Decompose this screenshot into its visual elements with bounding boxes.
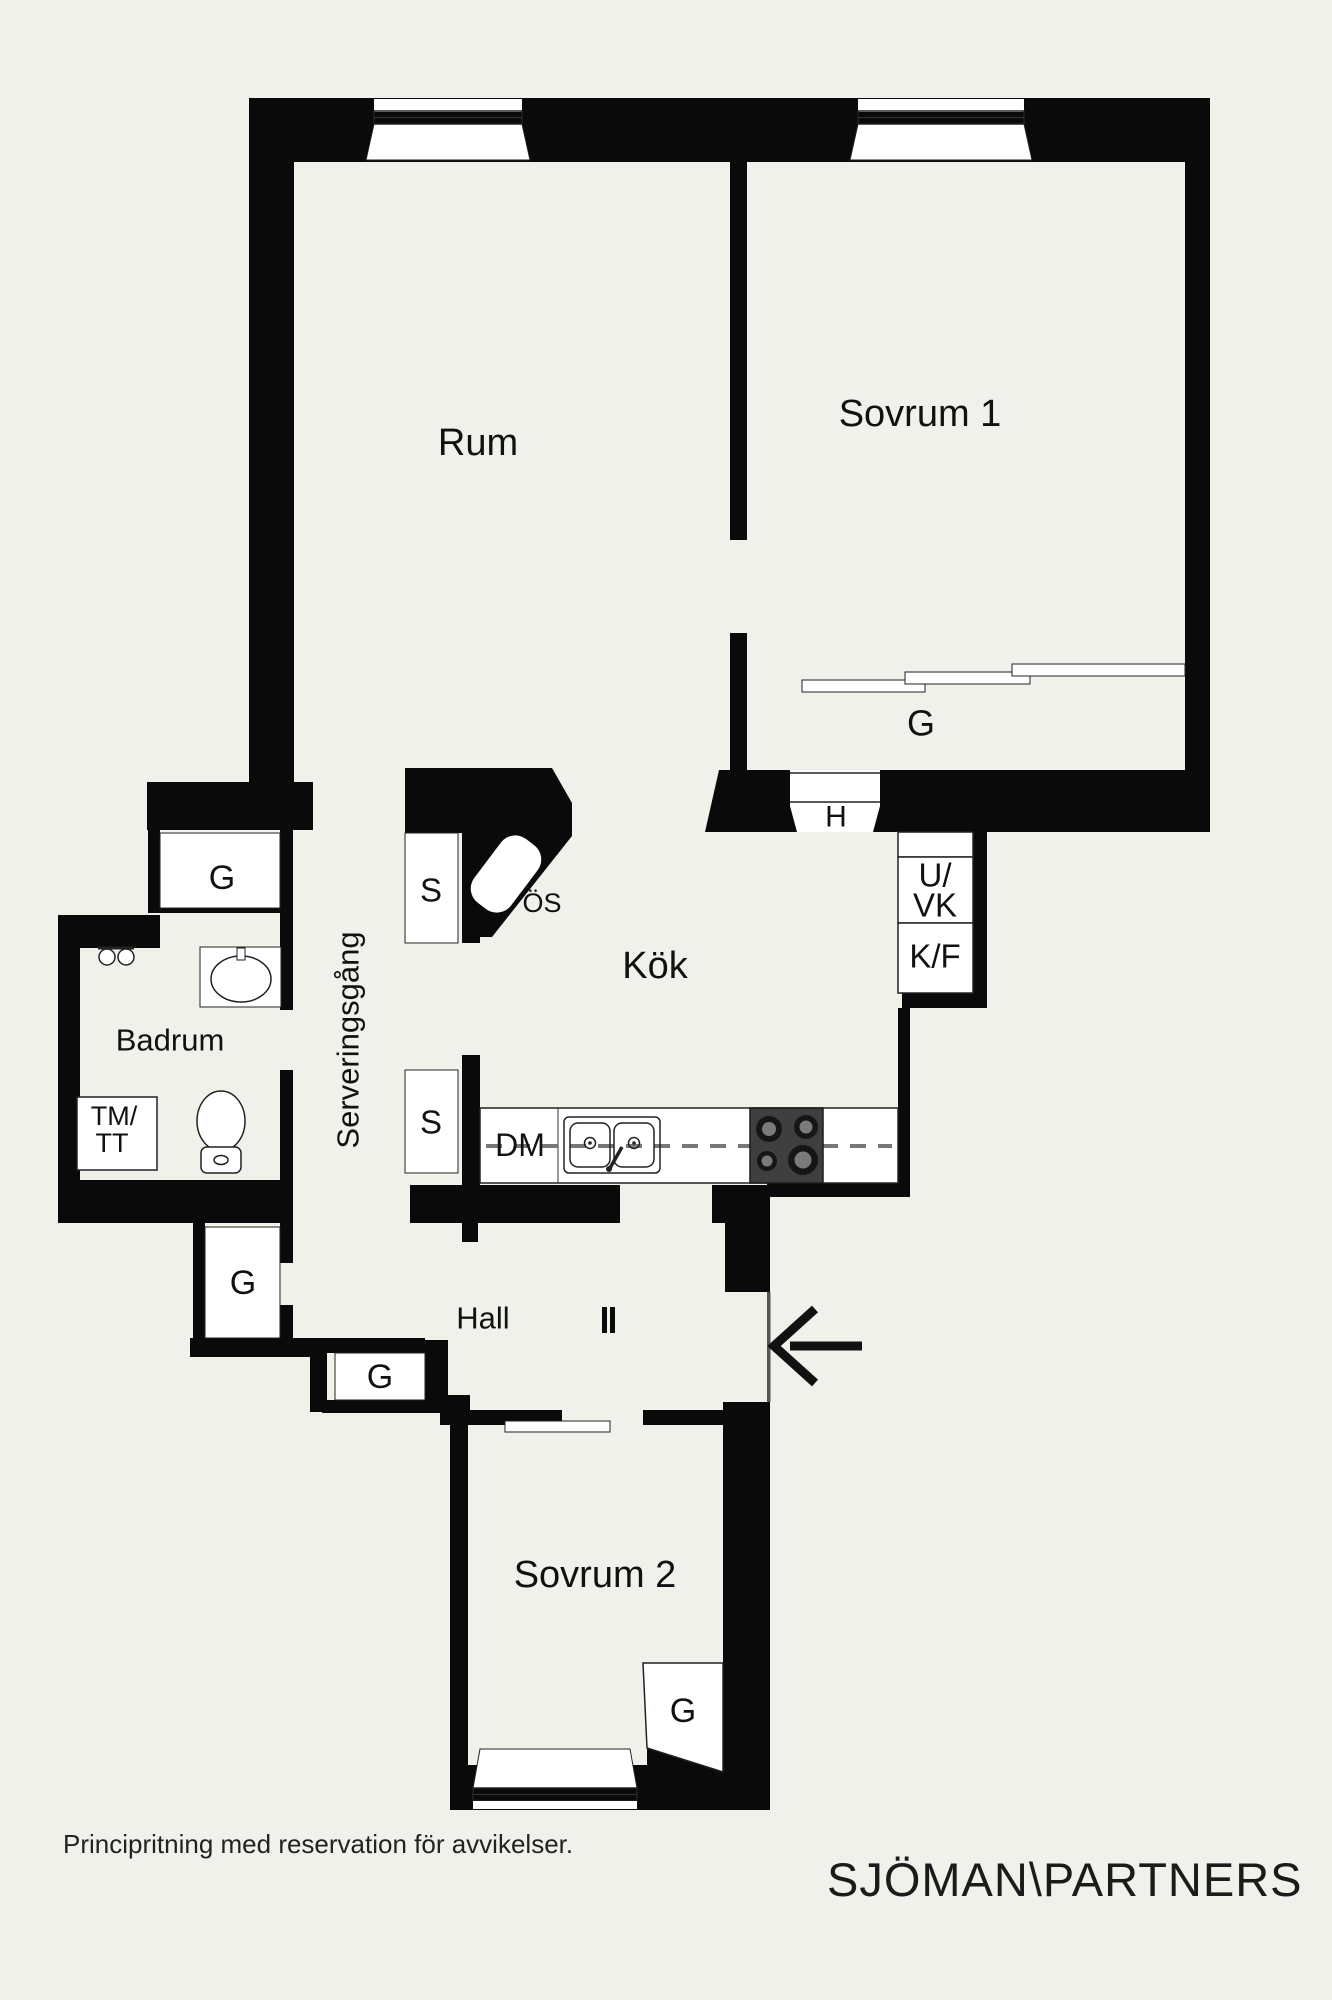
- shower-mixer-icon: [98, 948, 134, 965]
- sliding-rails-sovrum1: [802, 664, 1185, 692]
- wall-closet3-bottom: [322, 1400, 448, 1413]
- wall-closet1-left: [148, 830, 160, 913]
- window-rum: [366, 99, 530, 160]
- oven-label-line2: VK: [913, 887, 957, 924]
- room-label-sovrum2: Sovrum 2: [514, 1554, 677, 1596]
- wardrobe-label-2: G: [230, 1264, 256, 1302]
- room-label-kok: Kök: [622, 945, 688, 987]
- wall-badrum-bottom: [58, 1180, 293, 1223]
- fireplace-label: ÖS: [522, 888, 561, 918]
- room-label-hall: Hall: [456, 1301, 509, 1336]
- toilet-icon: [197, 1091, 245, 1173]
- room-label-serveringsgang: Serveringsgång: [331, 931, 366, 1148]
- wall-badrum-right-upper: [280, 830, 293, 1010]
- washer-label-line2: TT: [96, 1128, 129, 1158]
- wardrobe-label-3: G: [367, 1358, 393, 1396]
- entry-arrow-icon: [774, 1309, 862, 1383]
- wall-partition-upper: [730, 162, 747, 540]
- dishwasher-label: DM: [495, 1127, 545, 1163]
- wall-sovrum2-right: [723, 1402, 770, 1810]
- window-sovrum1: [850, 99, 1032, 160]
- cabinet-label-upper: S: [420, 872, 442, 909]
- fridge-freezer-label: K/F: [909, 938, 960, 975]
- wall-appliance-right: [973, 832, 987, 1008]
- cabinet-label-lower: S: [420, 1104, 442, 1141]
- washbasin-icon: [200, 947, 281, 1007]
- wall-appliance-step: [902, 993, 987, 1008]
- room-label-rum: Rum: [438, 422, 518, 464]
- wall-badrum-left: [58, 915, 80, 1223]
- wall-kok-right-thin: [898, 1008, 910, 1185]
- floor-plan-page: Rum Sovrum 1 Kök Badrum Serveringsgång H…: [0, 0, 1332, 2000]
- washer-label-line1: TM/: [91, 1101, 138, 1131]
- wall-sovrum2-top-right: [643, 1410, 725, 1425]
- floor-plan-drawing: Rum Sovrum 1 Kök Badrum Serveringsgång H…: [0, 0, 1332, 2000]
- wardrobe-label-1: G: [209, 859, 235, 897]
- wall-closet3-right: [425, 1340, 448, 1400]
- wall-kok-left-lower: [462, 1055, 480, 1185]
- disclaimer-text: Principritning med reservation för avvik…: [63, 1829, 573, 1859]
- wall-closet2-right-lower: [280, 1305, 293, 1338]
- wall-sovrum1-bottom: [880, 770, 1210, 832]
- wall-kok-top-right: [705, 770, 790, 832]
- room-label-sovrum1: Sovrum 1: [839, 393, 1002, 435]
- hatch-label: H: [825, 801, 847, 834]
- wall-closet2-left: [193, 1223, 205, 1338]
- wall-badrum-right-lower: [280, 1070, 293, 1185]
- wall-closet2-right-upper: [280, 1223, 293, 1263]
- wall-closet3-top: [322, 1338, 425, 1353]
- stove-icon: [750, 1108, 823, 1183]
- wall-kok-top-left: [405, 768, 572, 833]
- wardrobe-label-sovrum2: G: [670, 1692, 696, 1730]
- wall-partition-lower: [730, 633, 747, 772]
- wall-hall-sw-corner: [440, 1395, 470, 1425]
- wall-tooth: [462, 1223, 478, 1242]
- wall-kok-bottom-thin: [767, 1183, 910, 1197]
- wall-closet1-bottom-line: [160, 908, 280, 913]
- wall-hall-right: [725, 1197, 770, 1292]
- wall-west-stub: [147, 782, 313, 830]
- wall-closet2-bottom: [190, 1338, 310, 1357]
- wall-left: [249, 98, 294, 783]
- wardrobe-label-sovrum1: G: [907, 703, 935, 744]
- wall-sovrum2-left: [450, 1402, 468, 1810]
- wall-kok-bottom: [410, 1185, 620, 1223]
- threshold-mark: [602, 1307, 615, 1333]
- sliding-rail-sovrum2: [505, 1421, 610, 1432]
- room-label-badrum: Badrum: [116, 1023, 225, 1058]
- brand-logo: SJÖMAN\PARTNERS: [827, 1853, 1303, 1906]
- wall-right: [1185, 98, 1210, 832]
